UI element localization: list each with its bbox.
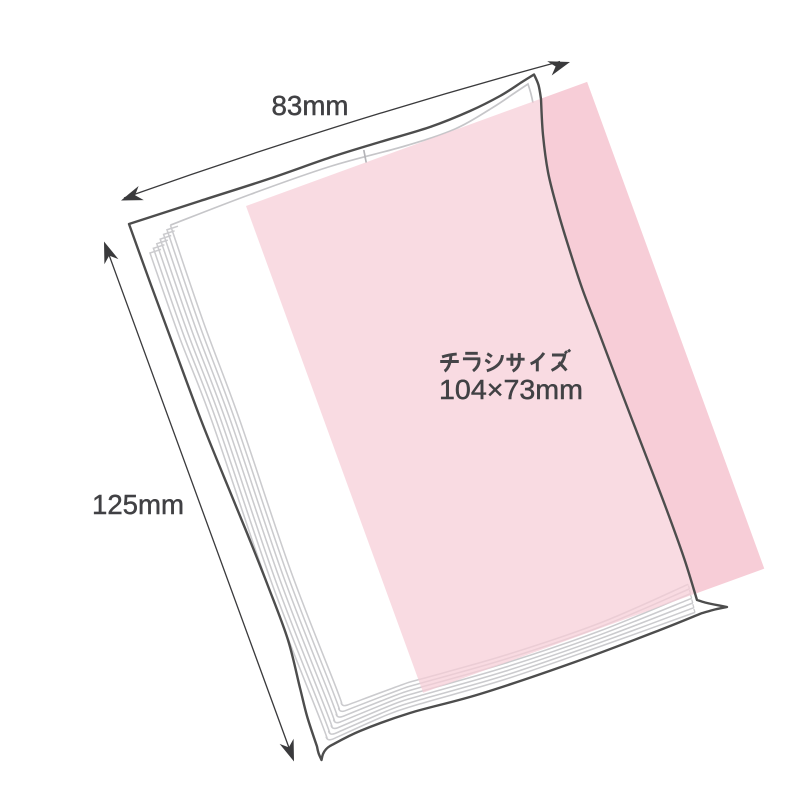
svg-text:104×73mm: 104×73mm xyxy=(439,374,583,405)
svg-text:83mm: 83mm xyxy=(272,90,349,121)
svg-text:125mm: 125mm xyxy=(92,489,184,520)
